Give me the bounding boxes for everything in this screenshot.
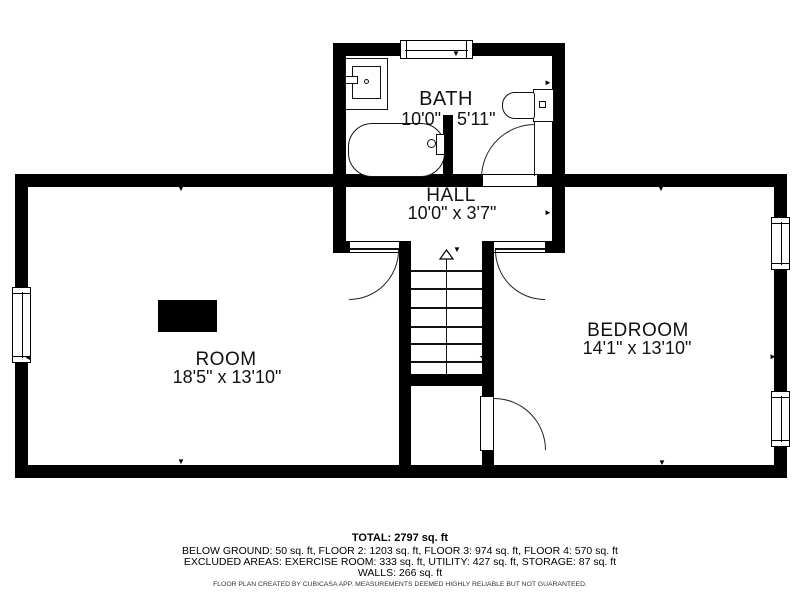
- stair-up-arrow-icon: [439, 249, 454, 260]
- tick-right-icon: ►: [544, 79, 552, 87]
- door-leaf-closet: [480, 396, 494, 451]
- fireplace-block: [158, 300, 217, 332]
- tick-right-icon: ►: [544, 209, 552, 217]
- window-bedroom-upper: [771, 217, 790, 270]
- window-glass-line: [781, 396, 782, 442]
- window-room-left: [12, 287, 31, 363]
- tick-left-icon: ◄: [339, 209, 347, 217]
- footer-total: TOTAL: 2797 sq. ft: [0, 533, 800, 544]
- wall-hall-bottom-left: [333, 241, 350, 253]
- tick-left-icon: ◄: [337, 80, 345, 88]
- tick-down-icon: ▼: [177, 458, 185, 466]
- toilet-button: [539, 101, 546, 108]
- wall-stair-bottom: [399, 374, 494, 386]
- bathtub-faucet: [436, 134, 445, 155]
- toilet-bowl: [502, 92, 535, 119]
- door-swing-closet: [494, 398, 546, 450]
- room-dims-bath-left: 10'0": [401, 110, 441, 128]
- tick-up-icon: ▲: [447, 180, 455, 188]
- tick-left-icon: ◄: [24, 354, 32, 362]
- footer-disclaimer: FLOOR PLAN CREATED BY CUBICASA APP. MEAS…: [0, 582, 800, 589]
- window-glass-line: [781, 222, 782, 265]
- room-dims-hall: 10'0" x 3'7": [408, 204, 497, 222]
- room-dims-room: 18'5" x 13'10": [173, 368, 282, 386]
- wall-hall-bottom-right: [545, 241, 565, 253]
- room-label-bath: BATH: [419, 89, 473, 109]
- tick-down-icon: ▼: [453, 246, 461, 254]
- sink-faucet: [345, 76, 358, 84]
- room-dims-bedroom: 14'1" x 13'10": [583, 339, 692, 357]
- stair-direction-line: [446, 258, 448, 374]
- tick-down-icon: ▼: [657, 185, 665, 193]
- footer-floors: BELOW GROUND: 50 sq. ft, FLOOR 2: 1203 s…: [0, 546, 800, 557]
- bathtub-faucet-knob: [427, 139, 436, 148]
- tick-right-icon: ►: [769, 353, 777, 361]
- window-glass-line: [22, 292, 23, 358]
- door-swing-hall-left: [349, 250, 399, 300]
- tick-down-icon: ▼: [658, 459, 666, 467]
- sink-drain: [364, 79, 369, 84]
- door-swing-hall-right: [495, 250, 545, 300]
- tick-left-icon: ◄: [337, 160, 345, 168]
- tick-down-icon: ▼: [177, 185, 185, 193]
- window-bedroom-lower: [771, 391, 790, 447]
- footer-excluded: EXCLUDED AREAS: EXERCISE ROOM: 333 sq. f…: [0, 557, 800, 568]
- tick-down-icon: ▼: [452, 50, 460, 58]
- footer-walls: WALLS: 266 sq. ft: [0, 568, 800, 579]
- door-swing-bath: [481, 124, 535, 178]
- bathtub: [348, 123, 445, 177]
- room-dims-bath-right: 5'11": [457, 110, 496, 128]
- floor-plan-canvas: BATH 10'0" 5'11" HALL 10'0" x 3'7" ROOM …: [0, 0, 800, 600]
- tick-right-icon: ►: [398, 353, 406, 361]
- window-bath-top: [400, 40, 473, 59]
- wall-stair-right-lower: [482, 450, 494, 478]
- tick-left-icon: ◄: [478, 353, 486, 361]
